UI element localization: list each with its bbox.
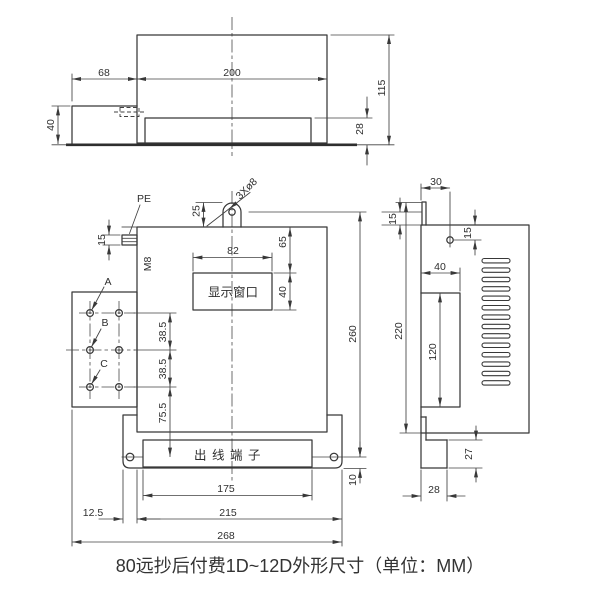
dim-front-215: 215	[219, 507, 237, 519]
dim-top-200: 200	[223, 67, 241, 79]
dim-top-115: 115	[376, 79, 388, 96]
dim-side-27: 27	[463, 448, 475, 460]
label-outlet-terminal: 出线端子	[194, 449, 266, 463]
dim-front-175: 175	[217, 483, 235, 495]
label-pe: PE	[137, 193, 151, 205]
dim-front-38-bottom: 38.5	[157, 359, 169, 380]
dim-front-75: 75.5	[157, 403, 169, 424]
top-view-outline	[66, 17, 357, 156]
dim-top-40: 40	[45, 119, 57, 131]
dim-side-40: 40	[434, 261, 446, 273]
dim-side-15-right: 15	[462, 227, 474, 239]
front-view-dimensions: 15 25 82 65 40 38.5 38.5 75.5	[72, 203, 366, 547]
dim-front-38-top: 38.5	[157, 322, 169, 343]
label-display-window: 显示窗口	[208, 286, 258, 300]
label-terminal-a: A	[104, 276, 111, 288]
dim-front-82: 82	[227, 245, 239, 257]
ear-tab-side	[422, 202, 426, 225]
ventilation-slots	[482, 259, 510, 386]
pe-terminal-tab	[122, 235, 137, 245]
front-view-labels: PE M8 3Xø8 A B C 显示窗口 出线端子	[91, 176, 266, 463]
drawing-caption: 80远抄后付费1D~12D外形尺寸（单位：MM）	[116, 556, 485, 576]
side-view-outline	[421, 192, 529, 468]
front-view: PE M8 3Xø8 A B C 显示窗口 出线端子 15 25	[66, 176, 366, 546]
dim-top-68: 68	[98, 67, 110, 79]
side-view: 30 15 220 15 40 120 27	[382, 176, 529, 501]
dim-front-12: 12.5	[83, 507, 104, 519]
engineering-drawing-page: 68 200 115 28 40	[0, 0, 600, 600]
dim-side-15-left: 15	[387, 213, 399, 225]
dim-side-28: 28	[428, 484, 440, 496]
dim-side-30: 30	[430, 176, 442, 188]
dim-front-10: 10	[347, 474, 359, 486]
dim-side-220: 220	[393, 322, 405, 340]
dim-front-25: 25	[191, 205, 203, 217]
terminal-panel	[72, 292, 137, 407]
dim-side-120: 120	[427, 343, 439, 361]
label-terminal-b: B	[101, 317, 108, 329]
dim-front-15: 15	[96, 234, 108, 246]
dimension-drawing: 68 200 115 28 40	[0, 0, 600, 600]
dim-front-268: 268	[217, 530, 235, 542]
label-hole-note: 3Xø8	[234, 176, 260, 202]
dim-front-65: 65	[277, 236, 289, 248]
label-terminal-c: C	[100, 358, 108, 370]
top-view: 68 200 115 28 40	[45, 17, 394, 165]
dim-top-28: 28	[354, 123, 366, 135]
label-m8: M8	[142, 257, 154, 272]
dim-front-260: 260	[347, 325, 359, 343]
dim-front-40: 40	[277, 286, 289, 298]
